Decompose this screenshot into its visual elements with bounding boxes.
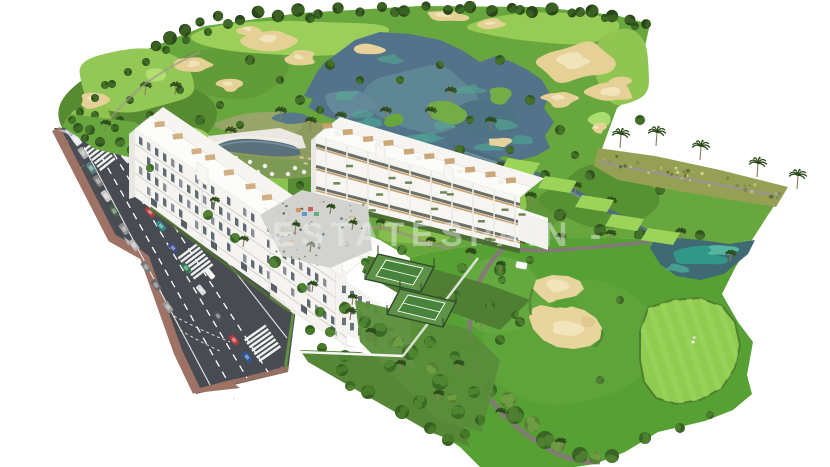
- svg-text:ESTATESPAIN -: ESTATESPAIN -: [272, 216, 608, 254]
